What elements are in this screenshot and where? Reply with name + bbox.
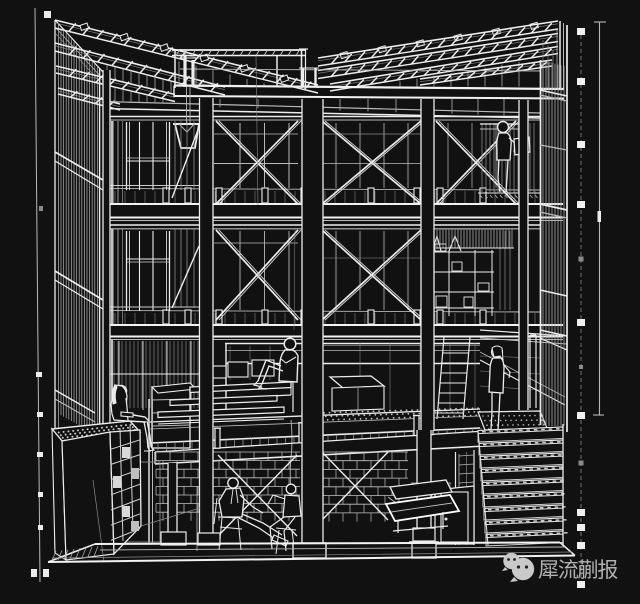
svg-text:犀流蒯报: 犀流蒯报	[538, 559, 618, 582]
